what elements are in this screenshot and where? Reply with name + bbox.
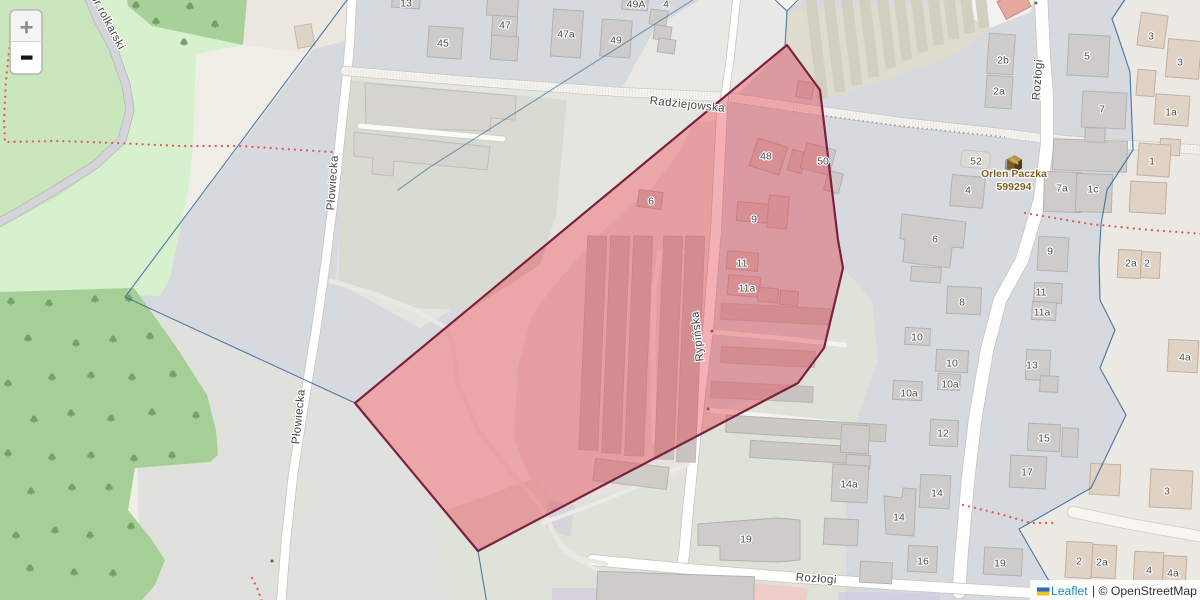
- svg-text:9: 9: [1047, 246, 1053, 258]
- svg-text:48: 48: [760, 151, 772, 163]
- svg-text:4a: 4a: [1167, 568, 1179, 580]
- svg-text:2a: 2a: [1096, 557, 1108, 569]
- svg-text:14: 14: [893, 512, 905, 524]
- svg-text:11: 11: [1036, 287, 1047, 299]
- svg-text:17: 17: [1021, 467, 1033, 479]
- svg-text:19: 19: [994, 558, 1006, 570]
- svg-text:13: 13: [1026, 360, 1038, 372]
- svg-text:45: 45: [437, 38, 449, 50]
- svg-text:11: 11: [737, 258, 748, 270]
- svg-text:19: 19: [740, 534, 752, 546]
- svg-text:15: 15: [1038, 433, 1050, 445]
- svg-text:13: 13: [400, 0, 412, 10]
- svg-text:10: 10: [946, 358, 958, 370]
- svg-text:9: 9: [751, 214, 757, 226]
- svg-text:7: 7: [1099, 104, 1105, 116]
- svg-text:2: 2: [1076, 556, 1082, 568]
- svg-text:4: 4: [965, 185, 971, 197]
- svg-text:2: 2: [1144, 258, 1150, 270]
- svg-text:2a: 2a: [993, 86, 1005, 98]
- svg-text:4a: 4a: [1179, 352, 1191, 364]
- svg-text:14a: 14a: [840, 479, 858, 491]
- svg-text:16: 16: [917, 556, 929, 568]
- svg-text:| © OpenStreetMap: | © OpenStreetMap: [1092, 584, 1197, 598]
- svg-text:6: 6: [932, 234, 938, 246]
- svg-text:11a: 11a: [739, 283, 756, 295]
- svg-text:49A: 49A: [627, 0, 646, 11]
- svg-text:4: 4: [1146, 565, 1152, 577]
- svg-text:3: 3: [1148, 31, 1154, 43]
- svg-text:7a: 7a: [1056, 183, 1068, 195]
- svg-text:5: 5: [1084, 51, 1090, 63]
- svg-text:3: 3: [1164, 486, 1170, 498]
- svg-text:8: 8: [959, 297, 965, 309]
- svg-text:Leaflet: Leaflet: [1051, 584, 1088, 598]
- svg-text:12: 12: [937, 428, 949, 440]
- svg-text:599294: 599294: [996, 181, 1031, 193]
- svg-text:3: 3: [1177, 57, 1183, 69]
- svg-text:Orlen Paczka: Orlen Paczka: [981, 168, 1047, 180]
- svg-text:2a: 2a: [1125, 258, 1137, 270]
- svg-text:14: 14: [931, 488, 943, 500]
- svg-text:4: 4: [663, 0, 669, 11]
- svg-text:52: 52: [970, 156, 982, 168]
- svg-text:1a: 1a: [1165, 107, 1177, 119]
- svg-text:6: 6: [648, 196, 654, 208]
- svg-text:47a: 47a: [557, 29, 575, 41]
- svg-text:47: 47: [499, 20, 511, 32]
- svg-text:10a: 10a: [900, 388, 918, 400]
- svg-text:10: 10: [911, 332, 923, 344]
- svg-text:50: 50: [817, 156, 829, 168]
- svg-text:2b: 2b: [997, 55, 1009, 67]
- svg-text:11a: 11a: [1034, 307, 1051, 319]
- svg-text:1c: 1c: [1087, 184, 1098, 196]
- svg-text:10a: 10a: [941, 379, 959, 391]
- svg-text:49: 49: [610, 35, 622, 47]
- svg-text:1: 1: [1149, 156, 1155, 168]
